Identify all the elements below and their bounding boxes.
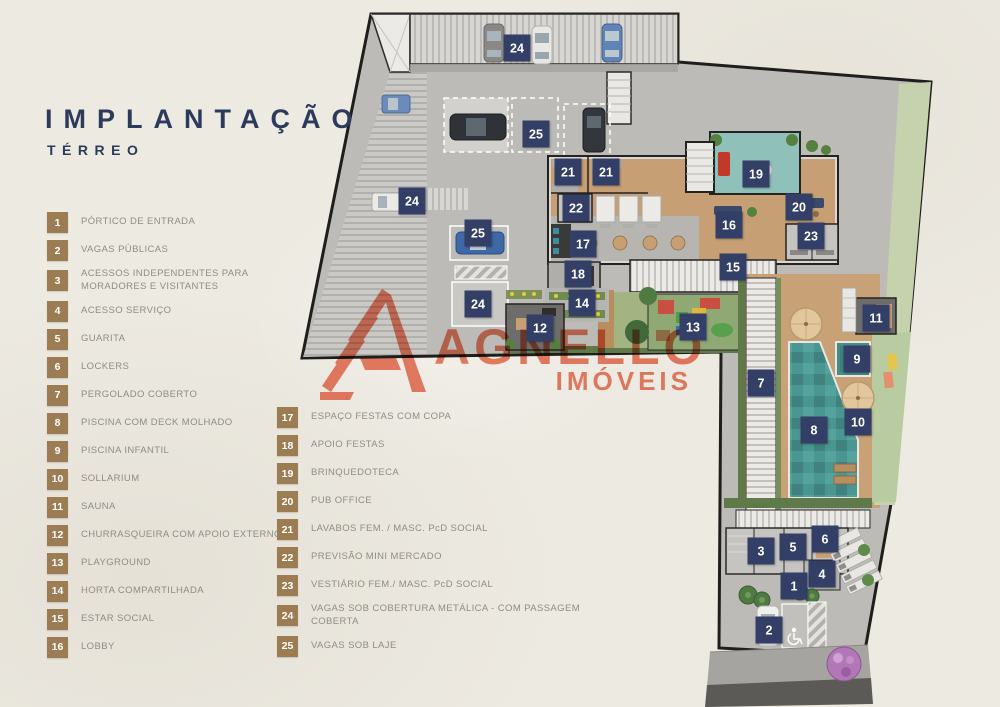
legend-item: 25VAGAS SOB LAJE [277, 636, 597, 657]
legend-item: 9PISCINA INFANTIL [47, 441, 282, 462]
legend-item: 14HORTA COMPARTILHADA [47, 581, 282, 602]
legend-item-label: GUARITA [81, 333, 125, 346]
legend-item-number: 3 [47, 270, 68, 291]
metal-roof-parking [410, 14, 678, 72]
legend-item-number: 15 [47, 609, 68, 630]
legend-item: 7PERGOLADO COBERTO [47, 385, 282, 406]
legend-item-label: APOIO FESTAS [311, 439, 385, 452]
legend-item: 5GUARITA [47, 329, 282, 350]
legend-item-label: VAGAS SOB COBERTURA METÁLICA - COM PASSA… [311, 603, 597, 629]
legend-item-number: 9 [47, 441, 68, 462]
legend-item-number: 8 [47, 413, 68, 434]
legend-item-label: PUB OFFICE [311, 495, 372, 508]
legend-item: 20PUB OFFICE [277, 491, 597, 512]
legend-item: 8PISCINA COM DECK MOLHADO [47, 413, 282, 434]
legend-item-label: LOBBY [81, 641, 115, 654]
umbrella [790, 308, 822, 340]
covered-passage [424, 188, 468, 210]
legend-item-label: PREVISÃO MINI MERCADO [311, 551, 442, 564]
legend-item: 23VESTIÁRIO FEM./ MASC. PcD SOCIAL [277, 575, 597, 596]
legend-item-label: PLAYGROUND [81, 557, 151, 570]
legend-item-label: ESPAÇO FESTAS COM COPA [311, 411, 451, 424]
legend-item-number: 4 [47, 301, 68, 322]
legend-item-label: CHURRASQUEIRA COM APOIO EXTERNO [81, 529, 282, 542]
legend-item-number: 1 [47, 212, 68, 233]
legend-item-number: 12 [47, 525, 68, 546]
legend-item: 3ACESSOS INDEPENDENTES PARA MORADORES E … [47, 268, 282, 294]
legend-item: 24VAGAS SOB COBERTURA METÁLICA - COM PAS… [277, 603, 597, 629]
legend-item-label: VESTIÁRIO FEM./ MASC. PcD SOCIAL [311, 579, 493, 592]
legend-item: 18APOIO FESTAS [277, 435, 597, 456]
legend-item-number: 17 [277, 407, 298, 428]
legend-item-number: 19 [277, 463, 298, 484]
legend-item: 1PÓRTICO DE ENTRADA [47, 212, 282, 233]
legend-item-label: ACESSO SERVIÇO [81, 305, 171, 318]
title-block: IMPLANTAÇÃO TÉRREO [45, 104, 363, 158]
legend-item-number: 18 [277, 435, 298, 456]
legend-item-label: BRINQUEDOTECA [311, 467, 399, 480]
legend-item: 11SAUNA [47, 497, 282, 518]
flowering-tree [827, 647, 861, 681]
page-title: IMPLANTAÇÃO [45, 104, 363, 135]
legend-item: 12CHURRASQUEIRA COM APOIO EXTERNO [47, 525, 282, 546]
street [705, 645, 873, 707]
page-subtitle: TÉRREO [47, 142, 363, 158]
legend-item-label: HORTA COMPARTILHADA [81, 585, 204, 598]
legend-item-number: 10 [47, 469, 68, 490]
legend-item-label: SOLLARIUM [81, 473, 140, 486]
pergola [746, 278, 776, 528]
legend-item: 13PLAYGROUND [47, 553, 282, 574]
car-blue-sedan [456, 232, 504, 254]
legend-item-label: VAGAS SOB LAJE [311, 640, 397, 653]
legend-column-1: 1PÓRTICO DE ENTRADA2VAGAS PÚBLICAS3ACESS… [47, 212, 282, 665]
legend-item: 21LAVABOS FEM. / MASC. PcD SOCIAL [277, 519, 597, 540]
legend-item: 6LOCKERS [47, 357, 282, 378]
legend-item-label: PERGOLADO COBERTO [81, 389, 197, 402]
legend-item-number: 22 [277, 547, 298, 568]
legend-item-label: LAVABOS FEM. / MASC. PcD SOCIAL [311, 523, 488, 536]
legend-item-label: PISCINA INFANTIL [81, 445, 169, 458]
car-dark-vertical [583, 108, 605, 152]
legend-item: 16LOBBY [47, 637, 282, 658]
legend-item-number: 11 [47, 497, 68, 518]
legend-column-2: 17ESPAÇO FESTAS COM COPA18APOIO FESTAS19… [277, 407, 597, 664]
legend-item: 15ESTAR SOCIAL [47, 609, 282, 630]
legend-item-number: 6 [47, 357, 68, 378]
legend-item-label: PISCINA COM DECK MOLHADO [81, 417, 233, 430]
legend-item-number: 13 [47, 553, 68, 574]
car-blue [602, 24, 622, 62]
legend-item-label: VAGAS PÚBLICAS [81, 244, 168, 257]
legend-item: 10SOLLARIUM [47, 469, 282, 490]
legend-item-number: 16 [47, 637, 68, 658]
page: AGNELLO IMÓVEIS 242521212422251718142412… [0, 0, 1000, 707]
legend-item-label: ACESSOS INDEPENDENTES PARA MORADORES E V… [81, 268, 249, 294]
legend-item-label: PÓRTICO DE ENTRADA [81, 216, 195, 229]
car-white [532, 26, 552, 64]
legend-item-label: ESTAR SOCIAL [81, 613, 154, 626]
legend-item-number: 14 [47, 581, 68, 602]
legend-item-number: 20 [277, 491, 298, 512]
legend-item-number: 21 [277, 519, 298, 540]
legend-item: 19BRINQUEDOTECA [277, 463, 597, 484]
legend-item-label: LOCKERS [81, 361, 129, 374]
legend-item-number: 24 [277, 605, 298, 626]
legend-item-number: 5 [47, 329, 68, 350]
legend-item: 2VAGAS PÚBLICAS [47, 240, 282, 261]
legend-item: 17ESPAÇO FESTAS COM COPA [277, 407, 597, 428]
umbrella [842, 382, 874, 414]
legend-item-number: 2 [47, 240, 68, 261]
legend-item-number: 25 [277, 636, 298, 657]
car-gray [484, 24, 504, 62]
legend-item-number: 23 [277, 575, 298, 596]
legend-item-number: 7 [47, 385, 68, 406]
car-white-public [757, 606, 779, 646]
legend-item-label: SAUNA [81, 501, 116, 514]
legend-item: 4ACESSO SERVIÇO [47, 301, 282, 322]
brand-tagline: IMÓVEIS [318, 366, 692, 397]
car-dark-sedan [450, 114, 506, 140]
legend-item: 22PREVISÃO MINI MERCADO [277, 547, 597, 568]
brand-watermark: AGNELLO IMÓVEIS [318, 286, 698, 408]
